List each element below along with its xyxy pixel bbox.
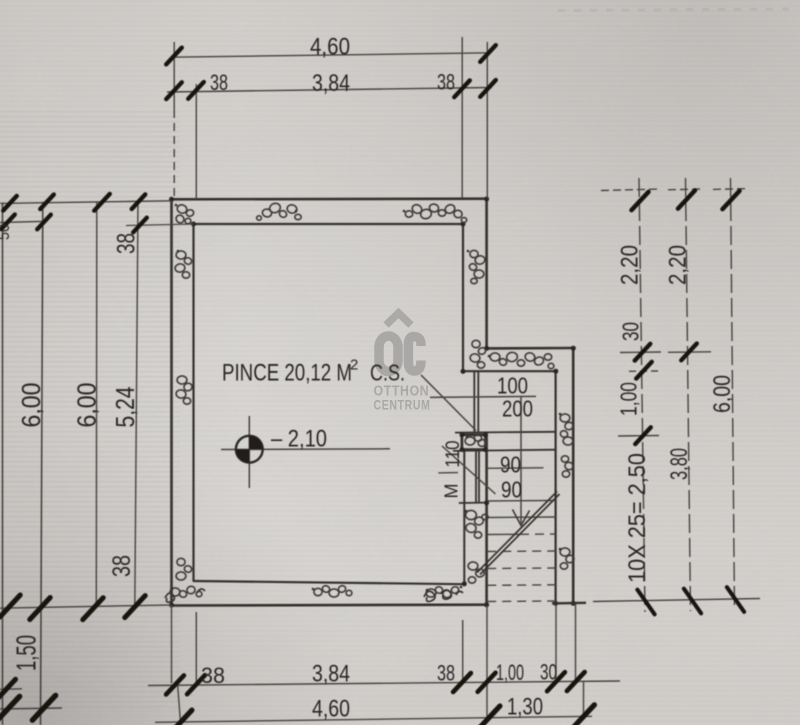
svg-text:200: 200 bbox=[502, 396, 533, 422]
svg-text:1,50: 1,50 bbox=[11, 635, 42, 671]
svg-text:6,00: 6,00 bbox=[72, 383, 102, 428]
svg-text:6,00: 6,00 bbox=[709, 375, 736, 413]
svg-text:38: 38 bbox=[210, 70, 228, 95]
svg-text:10X 25= 2,50: 10X 25= 2,50 bbox=[624, 453, 651, 583]
svg-text:2,20: 2,20 bbox=[617, 245, 644, 285]
svg-text:38: 38 bbox=[108, 555, 136, 577]
svg-text:1,00: 1,00 bbox=[616, 382, 642, 416]
svg-text:38: 38 bbox=[113, 233, 141, 254]
svg-text:38: 38 bbox=[437, 660, 455, 685]
svg-text:3,84: 3,84 bbox=[312, 70, 350, 97]
svg-text:CENTRUM: CENTRUM bbox=[374, 397, 431, 413]
svg-text:6,00: 6,00 bbox=[16, 383, 46, 428]
svg-text:3,80: 3,80 bbox=[666, 448, 693, 480]
svg-text:C.S.: C.S. bbox=[370, 360, 405, 386]
svg-text:M: M bbox=[442, 484, 462, 499]
svg-text:90: 90 bbox=[501, 477, 522, 503]
svg-text:90: 90 bbox=[500, 452, 521, 478]
svg-text:3,84: 3,84 bbox=[312, 661, 350, 688]
svg-text:1,30: 1,30 bbox=[507, 694, 543, 721]
svg-text:110: 110 bbox=[443, 441, 464, 468]
svg-text:2,20: 2,20 bbox=[665, 245, 692, 285]
svg-text:2: 2 bbox=[350, 357, 358, 374]
svg-text:30: 30 bbox=[540, 659, 557, 684]
svg-text:38: 38 bbox=[437, 70, 455, 95]
svg-text:1,00: 1,00 bbox=[496, 660, 524, 685]
svg-text:– 2,10: – 2,10 bbox=[271, 426, 327, 453]
svg-text:30: 30 bbox=[618, 322, 644, 341]
svg-text:4,60: 4,60 bbox=[312, 696, 350, 723]
svg-text:PINCE 20,12 M: PINCE 20,12 M bbox=[222, 360, 352, 387]
svg-text:4,60: 4,60 bbox=[310, 34, 350, 61]
svg-text:5,24: 5,24 bbox=[110, 387, 140, 428]
svg-text:50: 50 bbox=[0, 224, 13, 240]
svg-text:38: 38 bbox=[201, 663, 225, 688]
